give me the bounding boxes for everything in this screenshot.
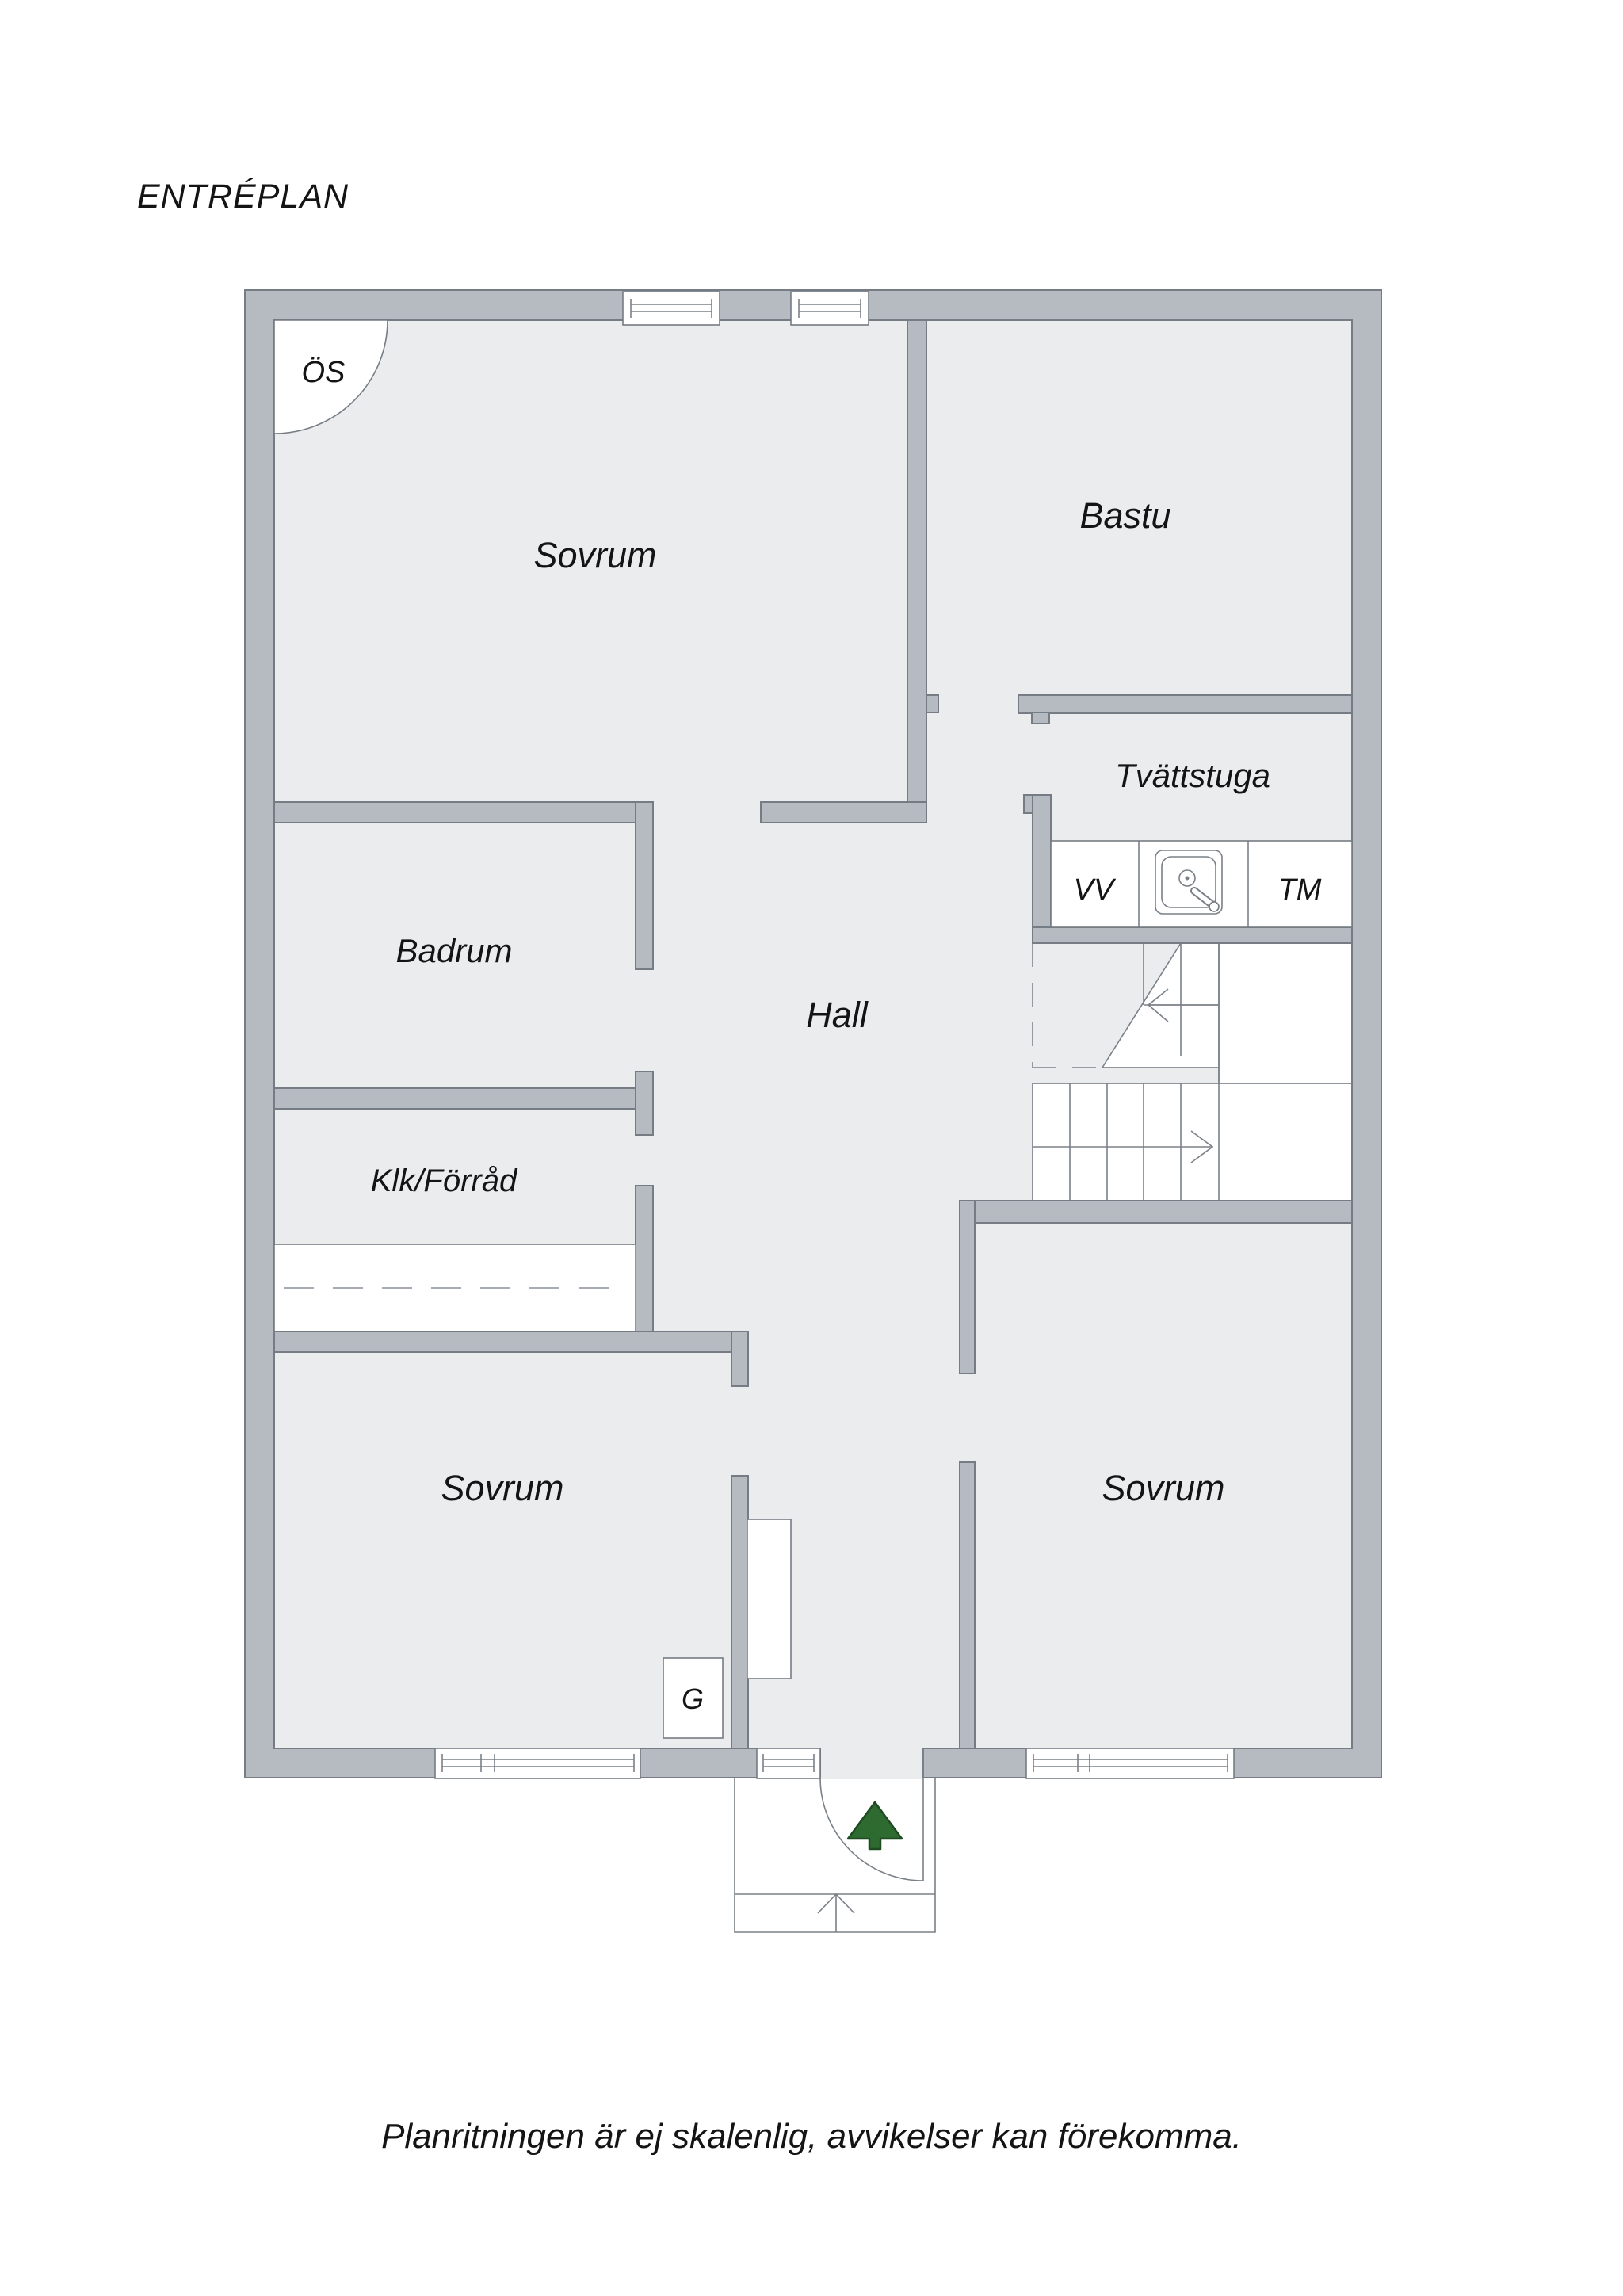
wall-sovrum-bottom-right <box>761 802 926 823</box>
wall-klk-right <box>636 1186 653 1338</box>
wall-sovrum-bottom-left <box>274 802 653 823</box>
label-tvattstuga: Tvättstuga <box>1115 757 1270 794</box>
wall-sovrum-bastu <box>907 320 926 823</box>
label-badrum: Badrum <box>395 932 512 969</box>
hall-closet <box>747 1519 791 1679</box>
wall-stub <box>926 695 938 712</box>
wall-stub <box>636 1072 653 1135</box>
wall-below-laundry-row <box>1033 927 1352 943</box>
floorplan-canvas: ENTRÉPLAN <box>0 0 1623 2296</box>
label-vv: VV <box>1074 873 1117 907</box>
window-bottom-left <box>435 1748 640 1778</box>
floorplan-page: ENTRÉPLAN <box>0 0 1623 2296</box>
label-sovrum-top: Sovrum <box>533 535 656 575</box>
entrance-porch <box>735 1778 935 1932</box>
window-entrance-sidelight <box>757 1748 820 1778</box>
wall-sovrum-bl-right-lower <box>731 1476 748 1748</box>
label-fireplace: ÖS <box>302 356 346 389</box>
label-bastu: Bastu <box>1079 495 1170 536</box>
wall-bastu-bottom <box>1018 695 1352 713</box>
wall-klk-bottom <box>274 1331 748 1352</box>
wall-stair-bottom <box>960 1201 1352 1223</box>
wall-stub <box>1032 712 1049 724</box>
page-title: ENTRÉPLAN <box>137 178 349 216</box>
disclaimer-text: Planritningen är ej skalenlig, avvikelse… <box>381 2117 1242 2156</box>
window-bottom-right <box>1026 1748 1234 1778</box>
label-klk-forrad: Klk/Förråd <box>371 1163 518 1198</box>
window-top-2 <box>791 292 869 325</box>
wall-sovrum-br-left-upper <box>960 1201 975 1373</box>
wall-stub <box>1024 795 1033 813</box>
label-g-wardrobe: G <box>682 1683 704 1715</box>
stair-lower-flight <box>1033 1083 1352 1201</box>
porch-floor <box>735 1778 935 1932</box>
wall-badrum-right <box>636 802 653 969</box>
window-top-1 <box>623 292 720 325</box>
klk-wardrobe-band <box>274 1244 636 1331</box>
label-sovrum-bottom-right: Sovrum <box>1102 1468 1224 1508</box>
label-sovrum-bottom-left: Sovrum <box>441 1468 563 1508</box>
wall-sovrum-bl-right-upper <box>731 1331 748 1386</box>
entrance-opening <box>820 1744 923 1779</box>
label-tm: TM <box>1278 873 1322 907</box>
wall-badrum-bottom <box>274 1088 636 1109</box>
wall-tvattstuga-left <box>1033 795 1051 943</box>
wall-sovrum-br-left-lower <box>960 1462 975 1748</box>
label-hall: Hall <box>806 995 869 1035</box>
